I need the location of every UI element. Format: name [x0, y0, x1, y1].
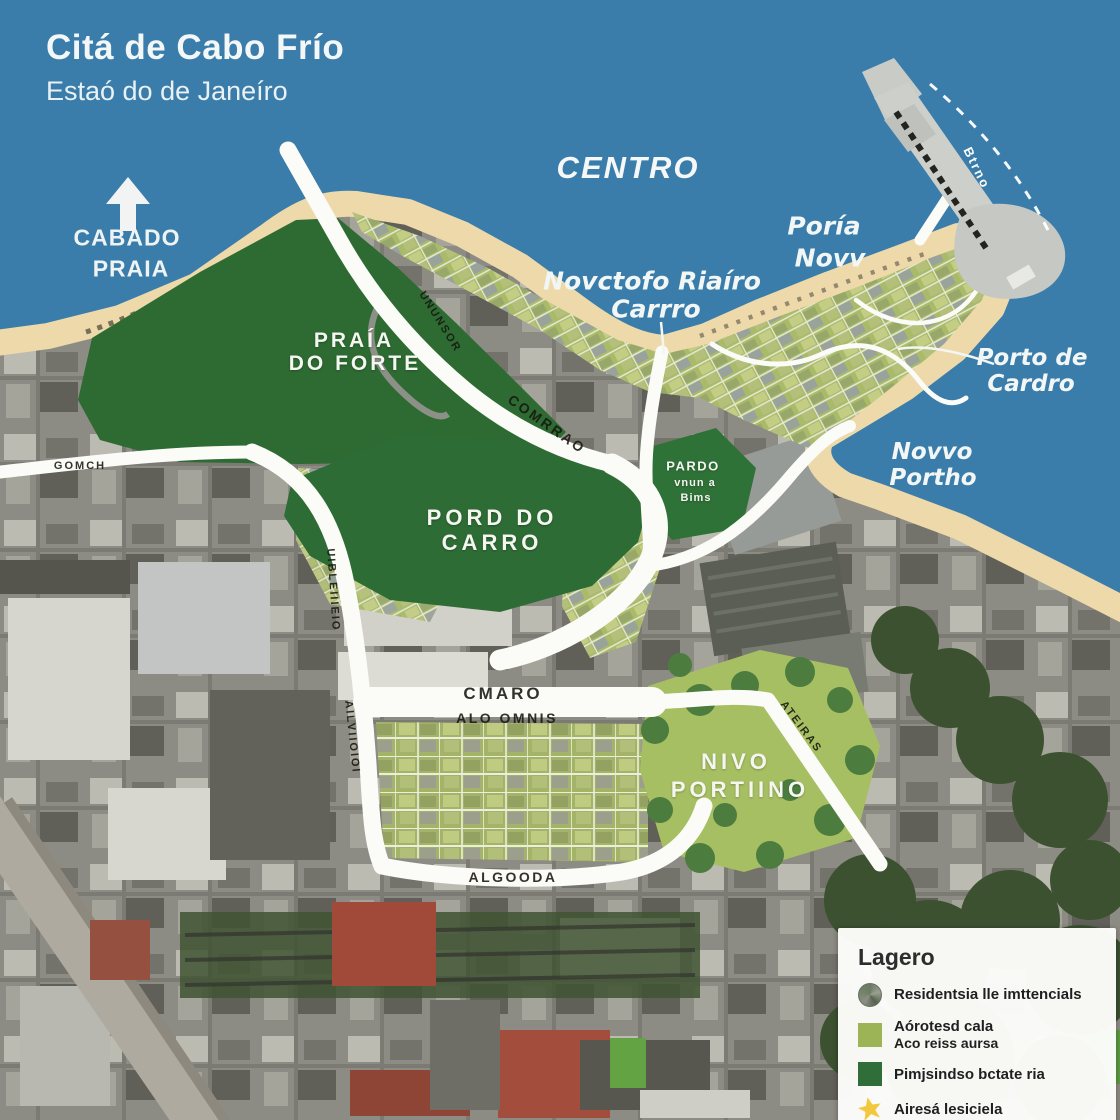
map-subtitle: Estaó do de Janeíro	[46, 76, 288, 107]
map-title: Citá de Cabo Frío	[46, 28, 344, 68]
olive-square-swatch	[858, 1023, 882, 1047]
map-canvas: Citá de Cabo Frío Estaó do de Janeíro CA…	[0, 0, 1120, 1120]
legend-item-residential: Residentsia lle imttencials	[858, 983, 1098, 1007]
label-porto-de-cardro: Cardro	[987, 371, 1074, 397]
legend-item-park: Pimjsindso bctate ria	[858, 1062, 1098, 1086]
road-label-alo-omnis: ALO OMNIS	[456, 710, 558, 726]
legend-item-olive-area: Aórotesd cala Aco reiss aursa	[858, 1018, 1098, 1051]
park-label-pardo: vnun a	[674, 477, 715, 489]
north-arrow-icon	[105, 177, 151, 231]
compass-label: CABADO	[74, 225, 181, 252]
label-poria: Poría	[787, 212, 860, 241]
residential-texture-icon	[858, 983, 882, 1007]
park-label-pardo: Bims	[681, 492, 712, 504]
legend-item-label: Airesá lesiciela	[894, 1101, 1002, 1118]
park-label-pardo: PARDO	[666, 459, 719, 474]
label-novvo-portho: Novvo	[892, 439, 973, 465]
yellow-star-icon	[856, 1095, 884, 1120]
road-label-algooda: ALGOODA	[468, 869, 557, 885]
park-label-pord-do-carro: PORD DO	[427, 505, 558, 531]
label-novctofo: Novctofo Riaíro	[543, 267, 761, 296]
legend-item-line: Aórotesd cala	[894, 1018, 993, 1035]
legend-item-special: Airesá lesiciela	[858, 1097, 1098, 1120]
park-label-nivo: NIVO	[701, 749, 771, 775]
compass-label: PRAIA	[93, 256, 170, 283]
legend-title: Lagero	[858, 944, 1098, 971]
park-label-praia-do-forte: PRAÍA	[314, 329, 394, 353]
park-label-praia-do-forte: DO FORTE	[289, 352, 422, 376]
dark-green-square-swatch	[858, 1062, 882, 1086]
label-poria: Novv	[795, 244, 866, 273]
park-label-pord-do-carro: CARRO	[442, 530, 543, 556]
road-label-gomch: GOMCH	[54, 460, 106, 472]
label-porto-de-cardro: Porto de	[977, 345, 1088, 371]
road-label-cmaro: CMARO	[463, 684, 542, 704]
legend: Lagero Residentsia lle imttencials Aórot…	[838, 928, 1116, 1120]
park-label-nivo: PORTIINO	[671, 777, 809, 803]
label-novctofo: Carrro	[611, 295, 700, 324]
legend-item-label: Pimjsindso bctate ria	[894, 1066, 1045, 1083]
legend-item-label: Residentsia lle imttencials	[894, 986, 1082, 1003]
legend-item-line: Aco reiss aursa	[894, 1035, 998, 1051]
legend-item-label: Aórotesd cala Aco reiss aursa	[894, 1018, 998, 1051]
label-novvo-portho: Portho	[889, 465, 976, 491]
district-label-centro: CENTRO	[557, 150, 700, 186]
